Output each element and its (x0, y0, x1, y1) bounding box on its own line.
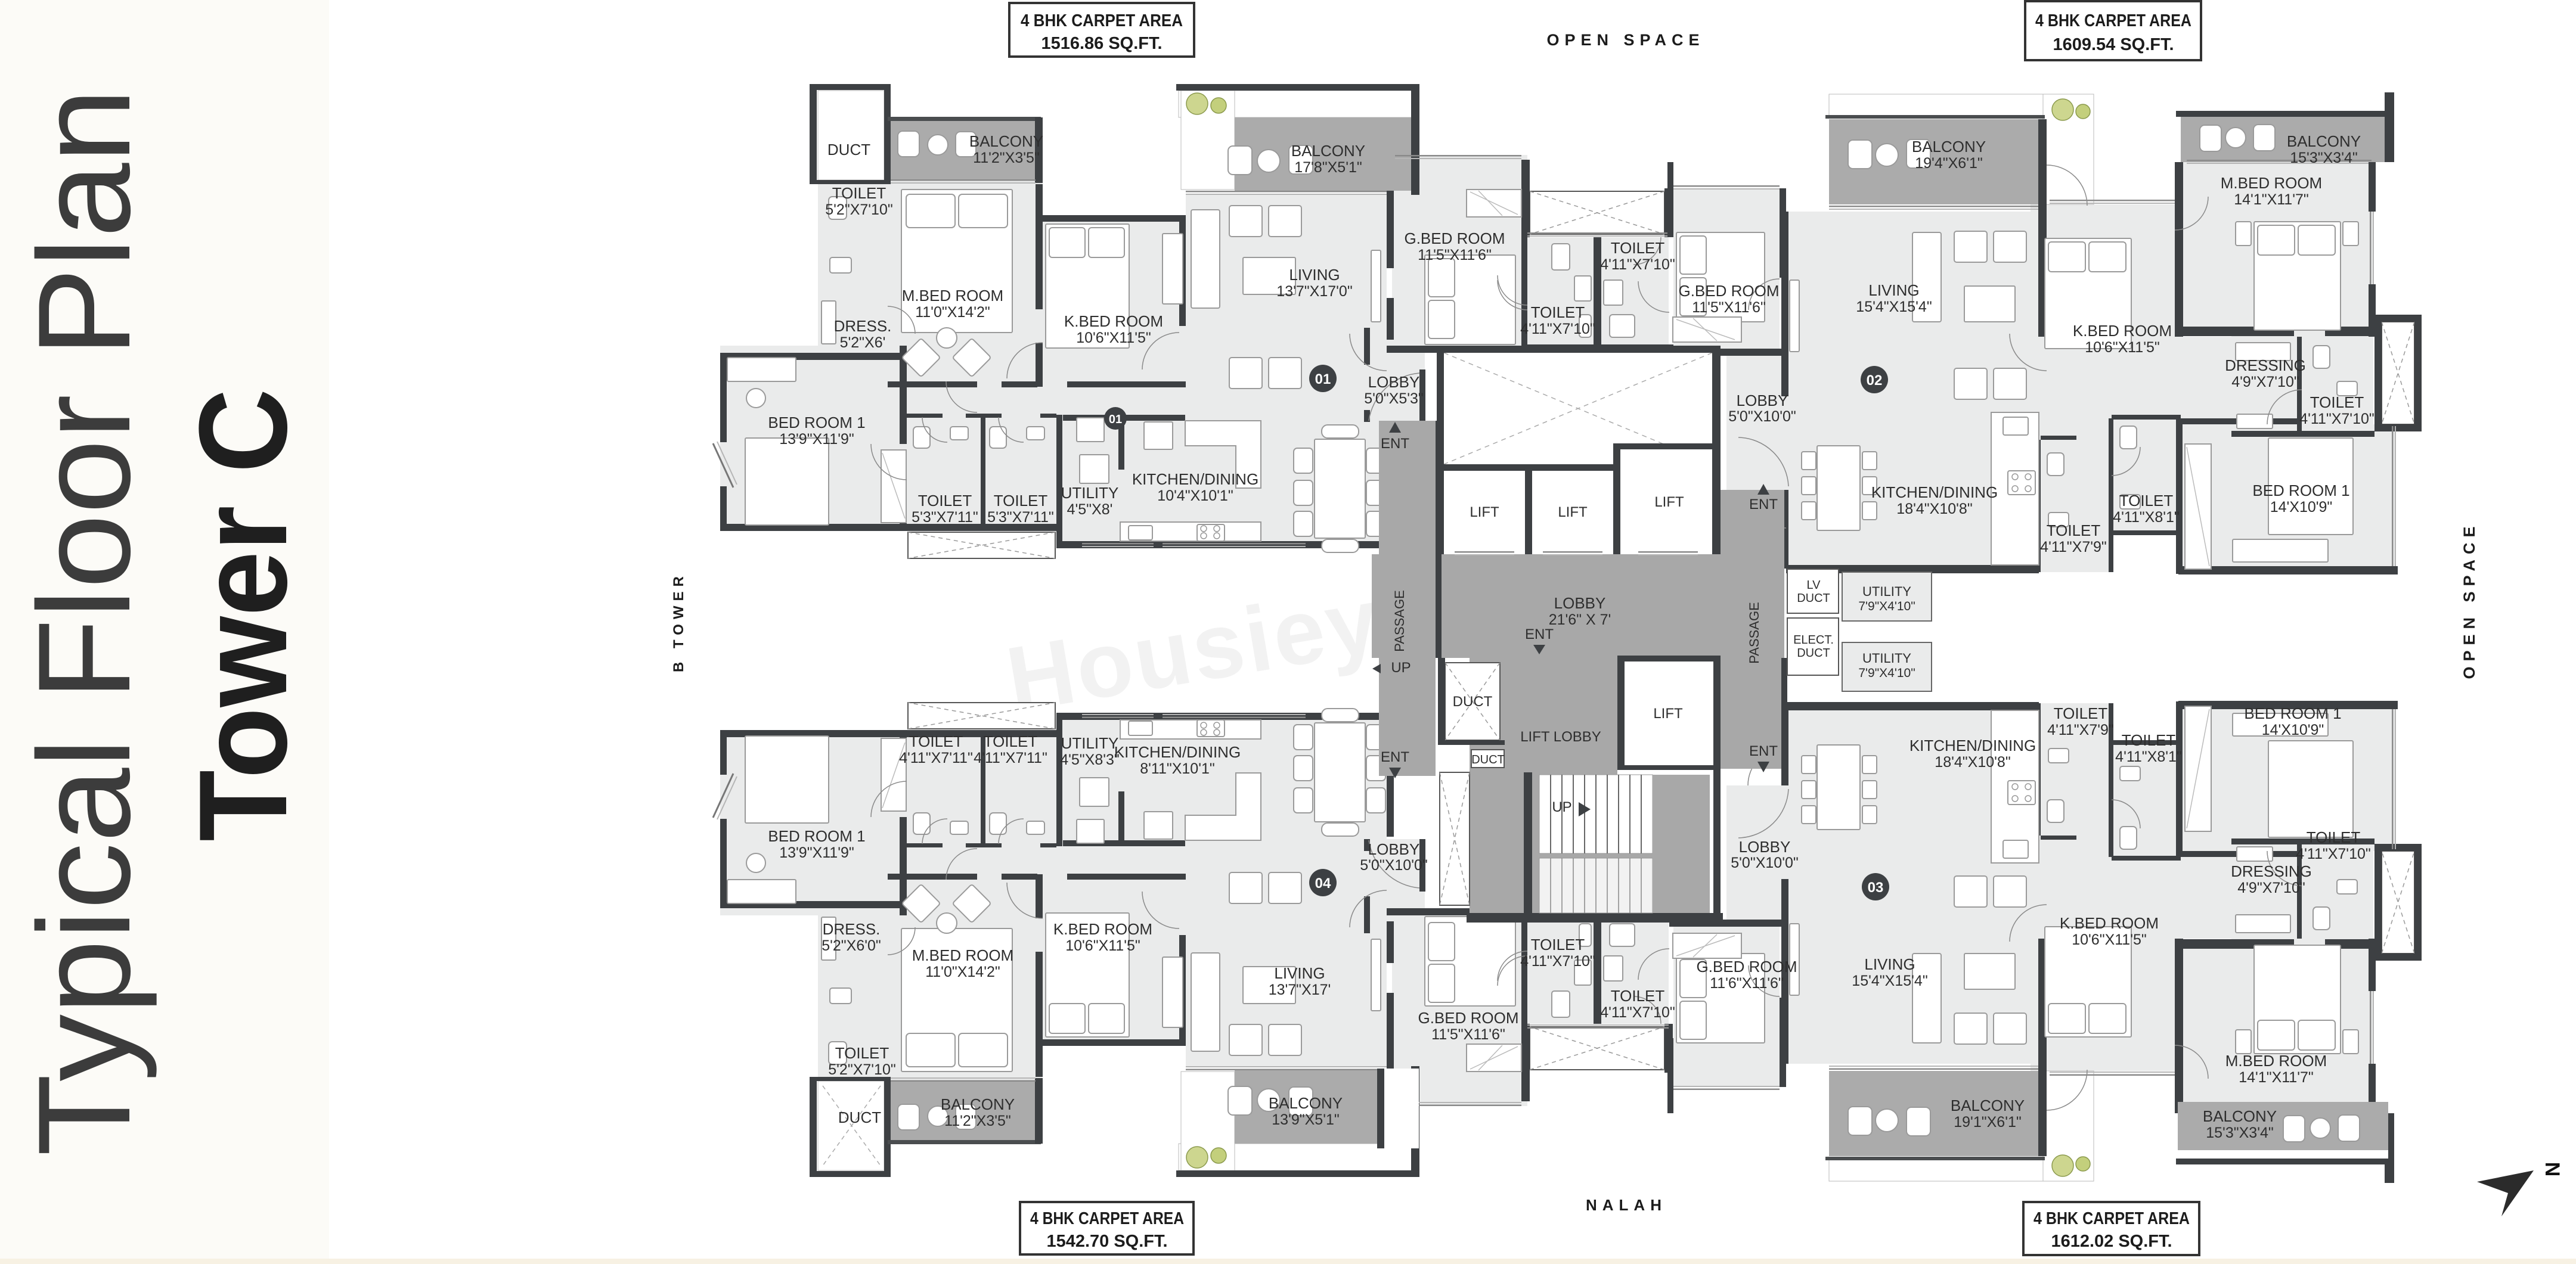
svg-text:4 BHK CARPET AREA: 4 BHK CARPET AREA (1021, 11, 1183, 30)
svg-text:BED ROOM 1: BED ROOM 1 (768, 414, 865, 431)
svg-text:TOILET: TOILET (984, 732, 1038, 750)
svg-text:KITCHEN/DINING: KITCHEN/DINING (1871, 483, 1998, 501)
svg-text:4'11"X8'1": 4'11"X8'1" (2115, 749, 2182, 765)
svg-text:10'4"X10'1": 10'4"X10'1" (1157, 487, 1233, 504)
svg-text:G.BED ROOM: G.BED ROOM (1418, 1009, 1518, 1027)
svg-text:TOILET: TOILET (909, 732, 963, 750)
svg-text:PASSAGE: PASSAGE (1392, 590, 1407, 652)
svg-text:TOILET: TOILET (2047, 521, 2101, 539)
svg-text:KITCHEN/DINING: KITCHEN/DINING (1132, 470, 1258, 488)
svg-text:LOBBY: LOBBY (1368, 840, 1420, 858)
svg-text:M.BED ROOM: M.BED ROOM (912, 946, 1013, 964)
svg-text:10'6"X11'5": 10'6"X11'5" (2085, 339, 2160, 356)
svg-text:TOILET: TOILET (832, 184, 886, 202)
svg-text:LIVING: LIVING (1864, 955, 1915, 973)
svg-text:14'X10'9": 14'X10'9" (2262, 722, 2324, 738)
svg-text:LV: LV (1807, 579, 1821, 592)
svg-text:4'11"X7'10": 4'11"X7'10" (1520, 953, 1595, 970)
svg-text:LIFT: LIFT (1653, 706, 1683, 722)
svg-text:TOILET: TOILET (1531, 936, 1585, 954)
svg-text:13'9"X5'1": 13'9"X5'1" (1272, 1111, 1340, 1128)
svg-text:4'5"X8': 4'5"X8' (1067, 501, 1113, 518)
svg-text:1609.54 SQ.FT.: 1609.54 SQ.FT. (2053, 35, 2174, 54)
svg-text:15'4"X15'4": 15'4"X15'4" (1856, 299, 1932, 315)
svg-text:DUCT: DUCT (1797, 647, 1830, 660)
svg-text:5'2"X7'10": 5'2"X7'10" (828, 1061, 896, 1078)
svg-text:TOILET: TOILET (1531, 303, 1585, 321)
svg-text:10'6"X11'5": 10'6"X11'5" (1076, 330, 1151, 346)
svg-text:UTILITY: UTILITY (1862, 651, 1911, 666)
svg-text:TOILET: TOILET (2054, 704, 2108, 722)
svg-text:UTILITY: UTILITY (1061, 484, 1119, 502)
svg-text:BALCONY: BALCONY (1951, 1097, 2025, 1114)
svg-text:OPEN SPACE: OPEN SPACE (1546, 31, 1704, 49)
svg-text:BALCONY: BALCONY (1291, 142, 1365, 160)
svg-text:14'1"X11'7": 14'1"X11'7" (2234, 191, 2309, 208)
svg-text:21'6" X 7': 21'6" X 7' (1549, 611, 1611, 628)
svg-text:01: 01 (1109, 413, 1122, 426)
svg-text:11'2"X3'5": 11'2"X3'5" (973, 150, 1040, 166)
svg-text:BALCONY: BALCONY (2203, 1107, 2277, 1125)
svg-text:KITCHEN/DINING: KITCHEN/DINING (1114, 743, 1241, 761)
svg-text:13'7"X17': 13'7"X17' (1269, 982, 1331, 998)
svg-text:19'1"X6'1": 19'1"X6'1" (1954, 1114, 2022, 1131)
svg-text:TOILET: TOILET (2122, 731, 2176, 749)
svg-text:ENT: ENT (1381, 749, 1409, 765)
svg-text:PASSAGE: PASSAGE (1747, 602, 1762, 664)
svg-text:4'11"X7'9": 4'11"X7'9" (2047, 722, 2114, 738)
svg-text:OPEN SPACE: OPEN SPACE (2460, 521, 2478, 679)
svg-text:18'4"X10'8": 18'4"X10'8" (1896, 501, 1972, 517)
svg-text:Tower C: Tower C (173, 389, 313, 841)
svg-text:11'5"X11'6": 11'5"X11'6" (1418, 247, 1492, 263)
svg-text:1542.70 SQ.FT.: 1542.70 SQ.FT. (1046, 1232, 1167, 1251)
svg-text:TOILET: TOILET (1611, 987, 1665, 1005)
svg-text:5'0"X10'0": 5'0"X10'0" (1728, 408, 1796, 425)
svg-text:DRESSING: DRESSING (2231, 862, 2312, 880)
svg-text:K.BED ROOM: K.BED ROOM (1064, 312, 1163, 330)
svg-text:UP: UP (1391, 660, 1411, 676)
svg-text:BALCONY: BALCONY (969, 132, 1043, 150)
svg-text:K.BED ROOM: K.BED ROOM (2073, 322, 2172, 340)
svg-text:11'0"X14'2": 11'0"X14'2" (915, 304, 990, 321)
svg-text:5'3"X7'11": 5'3"X7'11" (987, 509, 1054, 526)
svg-text:1516.86 SQ.FT.: 1516.86 SQ.FT. (1041, 34, 1162, 53)
svg-text:03: 03 (1868, 880, 1884, 896)
svg-text:TOILET: TOILET (2119, 492, 2174, 510)
svg-text:LOBBY: LOBBY (1368, 373, 1420, 391)
svg-text:ELECT.: ELECT. (1793, 633, 1834, 647)
svg-text:5'2"X7'10": 5'2"X7'10" (825, 201, 893, 218)
svg-text:4'11"X7'9": 4'11"X7'9" (2040, 539, 2107, 555)
svg-text:4'11"X7'11": 4'11"X7'11" (974, 750, 1047, 766)
svg-text:7'9"X4'10": 7'9"X4'10" (1858, 600, 1915, 613)
svg-text:M.BED ROOM: M.BED ROOM (902, 287, 1003, 305)
svg-text:TOILET: TOILET (1611, 239, 1665, 257)
svg-text:TOILET: TOILET (2307, 828, 2361, 846)
svg-text:4 BHK CARPET AREA: 4 BHK CARPET AREA (2035, 11, 2191, 30)
svg-text:02: 02 (1867, 372, 1883, 389)
svg-text:TOILET: TOILET (835, 1044, 889, 1062)
svg-text:G.BED ROOM: G.BED ROOM (1696, 958, 1797, 976)
svg-text:13'9"X11'9": 13'9"X11'9" (779, 844, 854, 861)
svg-text:4'11"X7'11": 4'11"X7'11" (899, 750, 973, 766)
svg-text:14'X10'9": 14'X10'9" (2270, 499, 2333, 515)
svg-text:ENT: ENT (1749, 743, 1778, 759)
svg-text:LOBBY: LOBBY (1554, 594, 1606, 612)
svg-text:LIFT: LIFT (1470, 504, 1499, 520)
svg-text:BALCONY: BALCONY (1269, 1094, 1343, 1112)
svg-text:DRESS.: DRESS. (823, 920, 881, 938)
svg-text:K.BED ROOM: K.BED ROOM (2060, 914, 2159, 932)
svg-text:LOBBY: LOBBY (1737, 392, 1788, 409)
svg-text:5'2"X6': 5'2"X6' (840, 334, 886, 351)
svg-text:4 BHK CARPET AREA: 4 BHK CARPET AREA (1030, 1209, 1184, 1228)
svg-text:4'5"X8'3": 4'5"X8'3" (1060, 751, 1120, 768)
svg-text:B TOWER: B TOWER (671, 572, 687, 672)
svg-text:DUCT: DUCT (1797, 592, 1830, 605)
svg-text:DRESSING: DRESSING (2225, 356, 2306, 374)
svg-text:BED ROOM 1: BED ROOM 1 (2244, 704, 2341, 722)
svg-text:5'0"X10'0": 5'0"X10'0" (1360, 857, 1428, 874)
svg-text:KITCHEN/DINING: KITCHEN/DINING (1909, 737, 2036, 754)
svg-text:UP: UP (1552, 799, 1571, 815)
svg-text:10'6"X11'5": 10'6"X11'5" (1065, 937, 1140, 954)
svg-text:1612.02 SQ.FT.: 1612.02 SQ.FT. (2051, 1232, 2172, 1251)
svg-text:K.BED ROOM: K.BED ROOM (1053, 920, 1152, 938)
svg-text:4'9"X7'10": 4'9"X7'10" (2237, 880, 2305, 896)
svg-text:14'1"X11'7": 14'1"X11'7" (2239, 1069, 2314, 1086)
svg-text:TOILET: TOILET (994, 492, 1048, 510)
svg-text:UTILITY: UTILITY (1061, 734, 1119, 752)
svg-text:BED ROOM 1: BED ROOM 1 (768, 827, 865, 845)
svg-text:7'9"X4'10": 7'9"X4'10" (1858, 666, 1915, 680)
svg-text:5'0"X10'0": 5'0"X10'0" (1731, 855, 1799, 871)
svg-text:Typical Floor Plan: Typical Floor Plan (11, 88, 157, 1156)
svg-text:5'2"X6'0": 5'2"X6'0" (822, 937, 881, 954)
svg-text:G.BED ROOM: G.BED ROOM (1678, 282, 1779, 300)
svg-text:15'4"X15'4": 15'4"X15'4" (1852, 973, 1927, 989)
svg-text:ENT: ENT (1381, 436, 1409, 452)
svg-text:BALCONY: BALCONY (2287, 132, 2361, 150)
svg-text:13'7"X17'0": 13'7"X17'0" (1276, 283, 1352, 300)
svg-text:15'3"X3'4": 15'3"X3'4" (2290, 150, 2358, 166)
svg-text:4'9"X7'10": 4'9"X7'10" (2231, 374, 2299, 390)
svg-text:8'11"X10'1": 8'11"X10'1" (1140, 760, 1215, 777)
svg-text:11'5"X11'6": 11'5"X11'6" (1692, 299, 1766, 316)
svg-text:M.BED ROOM: M.BED ROOM (2221, 174, 2322, 192)
svg-text:4'11"X7'10": 4'11"X7'10" (1520, 321, 1595, 337)
svg-text:BED ROOM 1: BED ROOM 1 (2252, 482, 2349, 499)
svg-text:4'11"X8'1": 4'11"X8'1" (2113, 509, 2180, 526)
svg-text:4'11"X7'10": 4'11"X7'10" (2296, 846, 2371, 862)
svg-text:17'8"X5'1": 17'8"X5'1" (1294, 159, 1362, 176)
svg-text:11'2"X3'5": 11'2"X3'5" (944, 1113, 1011, 1129)
svg-text:5'3"X7'11": 5'3"X7'11" (912, 509, 978, 526)
svg-text:ENT: ENT (1525, 626, 1554, 642)
svg-text:4'11"X7'10": 4'11"X7'10" (1600, 256, 1675, 273)
svg-text:UTILITY: UTILITY (1862, 584, 1911, 599)
svg-text:DUCT: DUCT (1471, 753, 1505, 766)
svg-text:LOBBY: LOBBY (1739, 838, 1791, 856)
svg-text:G.BED ROOM: G.BED ROOM (1404, 229, 1505, 247)
svg-text:BALCONY: BALCONY (1912, 138, 1986, 156)
svg-text:DUCT: DUCT (1453, 694, 1493, 710)
svg-text:LIVING: LIVING (1868, 281, 1919, 299)
svg-text:04: 04 (1315, 875, 1331, 892)
svg-text:5'0"X5'3": 5'0"X5'3" (1364, 390, 1424, 407)
svg-text:11'6"X11'6": 11'6"X11'6" (1710, 975, 1784, 992)
svg-text:13'9"X11'9": 13'9"X11'9" (779, 431, 854, 448)
svg-text:DUCT: DUCT (838, 1108, 881, 1126)
svg-text:4'11"X7'10": 4'11"X7'10" (1600, 1004, 1675, 1021)
svg-text:19'4"X6'1": 19'4"X6'1" (1915, 155, 1983, 172)
svg-text:11'5"X11'6": 11'5"X11'6" (1431, 1026, 1505, 1043)
svg-text:TOILET: TOILET (2310, 393, 2364, 411)
svg-text:4 BHK CARPET AREA: 4 BHK CARPET AREA (2033, 1209, 2190, 1228)
svg-text:BALCONY: BALCONY (941, 1095, 1015, 1113)
svg-text:LIFT: LIFT (1654, 494, 1684, 510)
svg-text:4'11"X7'10": 4'11"X7'10" (2299, 411, 2374, 427)
svg-text:DUCT: DUCT (827, 141, 870, 159)
svg-text:ENT: ENT (1749, 496, 1778, 513)
svg-text:LIVING: LIVING (1274, 964, 1325, 982)
svg-text:DRESS.: DRESS. (834, 317, 892, 335)
svg-text:LIVING: LIVING (1289, 266, 1340, 284)
svg-text:LIFT LOBBY: LIFT LOBBY (1520, 729, 1601, 745)
svg-text:11'0"X14'2": 11'0"X14'2" (925, 964, 1000, 980)
svg-text:NALAH: NALAH (1586, 1196, 1667, 1214)
svg-text:N: N (2541, 1162, 2563, 1177)
svg-text:01: 01 (1315, 371, 1331, 387)
svg-text:TOILET: TOILET (918, 492, 972, 510)
svg-text:LIFT: LIFT (1558, 504, 1588, 520)
svg-text:18'4"X10'8": 18'4"X10'8" (1935, 754, 2010, 771)
svg-text:15'3"X3'4": 15'3"X3'4" (2206, 1125, 2274, 1141)
svg-text:10'6"X11'5": 10'6"X11'5" (2072, 931, 2147, 948)
svg-text:M.BED ROOM: M.BED ROOM (2225, 1052, 2327, 1070)
